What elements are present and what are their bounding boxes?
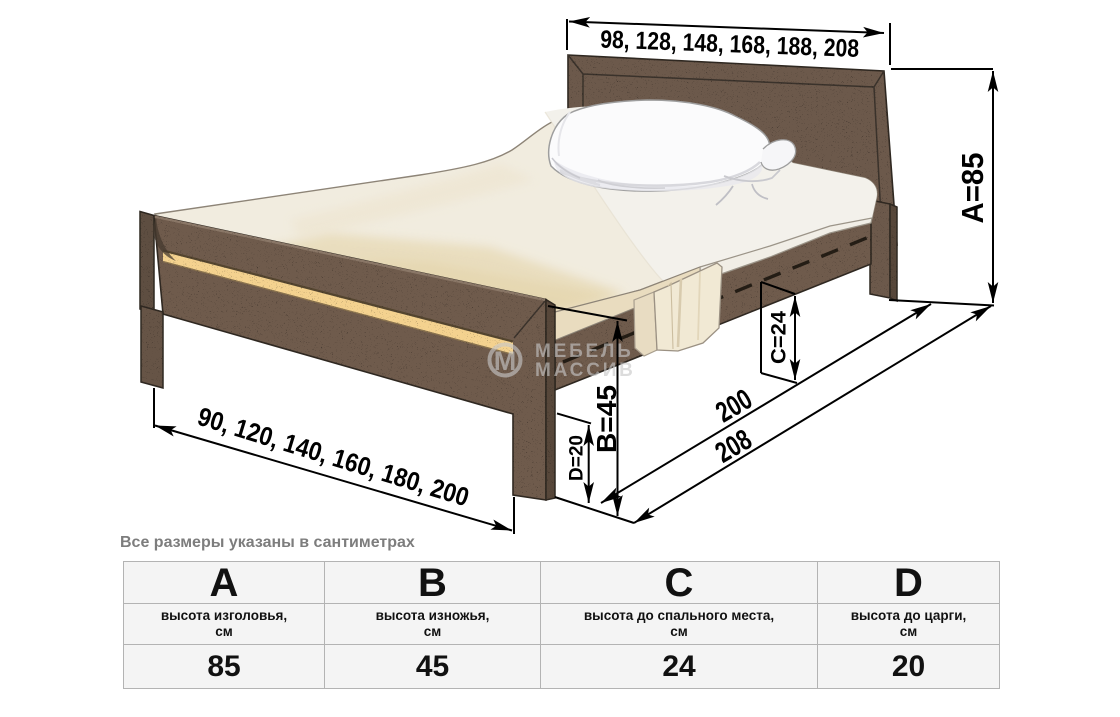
svg-text:208: 208 [710,424,757,470]
svg-text:D=20: D=20 [567,435,588,481]
svg-text:МАССИВ: МАССИВ [535,360,636,381]
svg-text:А=85: А=85 [955,153,990,224]
svg-text:МЕБЕЛЬ: МЕБЕЛЬ [535,341,634,362]
svg-text:M: M [494,346,517,376]
svg-text:С=24: С=24 [768,311,791,364]
svg-text:200: 200 [711,383,758,429]
svg-text:90, 120, 140, 160, 180, 200: 90, 120, 140, 160, 180, 200 [194,401,472,512]
svg-text:В=45: В=45 [591,385,622,453]
